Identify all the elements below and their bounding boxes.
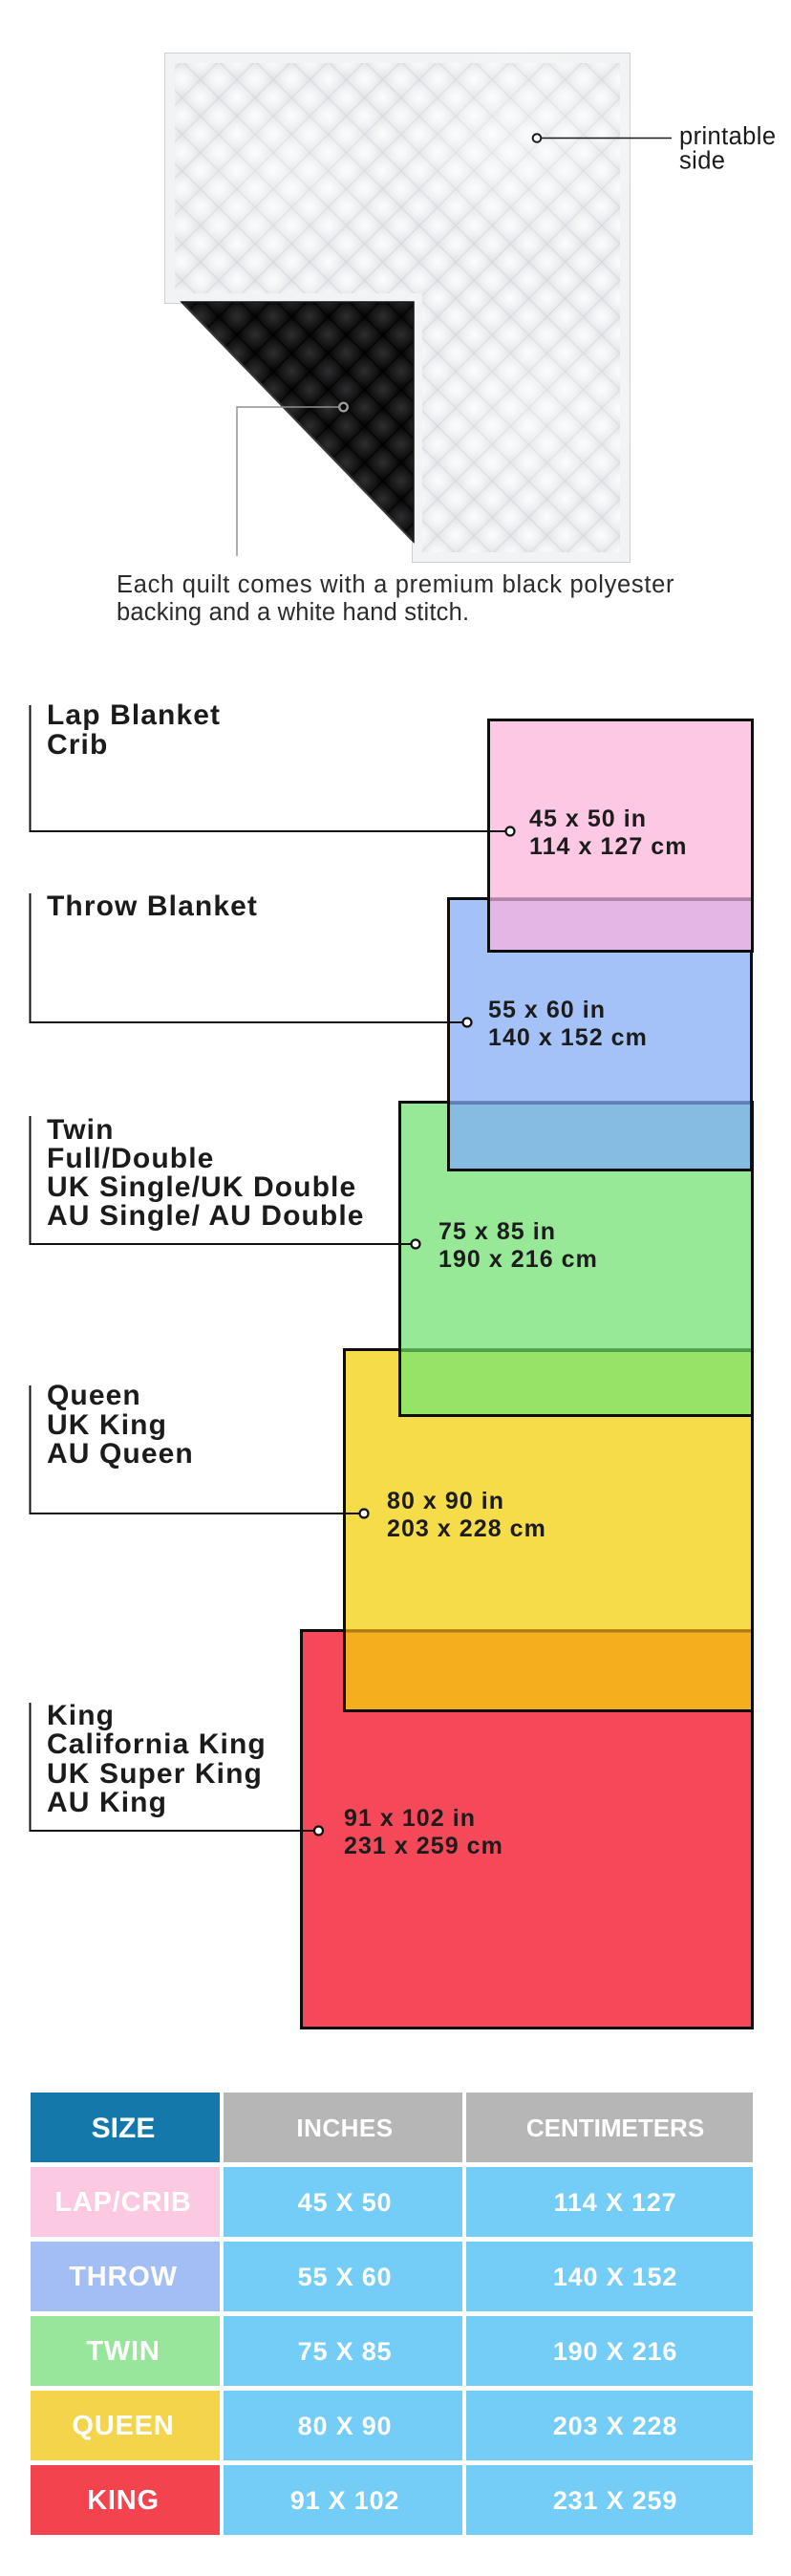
- svg-text:Full/Double: Full/Double: [47, 1143, 214, 1174]
- svg-text:140 X 152: 140 X 152: [553, 2263, 677, 2291]
- svg-text:SIZE: SIZE: [92, 2113, 156, 2144]
- svg-text:203 x 228 cm: 203 x 228 cm: [387, 1515, 546, 1542]
- svg-text:45 X 50: 45 X 50: [298, 2188, 393, 2217]
- svg-text:UK King: UK King: [47, 1409, 167, 1441]
- svg-text:55 x 60 in: 55 x 60 in: [488, 997, 606, 1023]
- svg-text:45 x 50 in: 45 x 50 in: [529, 805, 647, 832]
- svg-text:KING: KING: [87, 2485, 160, 2516]
- svg-text:Twin: Twin: [47, 1114, 115, 1146]
- svg-text:75 x 85 in: 75 x 85 in: [438, 1218, 556, 1245]
- svg-text:Crib: Crib: [47, 729, 108, 761]
- svg-text:UK Super King: UK Super King: [47, 1758, 263, 1790]
- svg-text:INCHES: INCHES: [296, 2114, 393, 2142]
- svg-text:75 X 85: 75 X 85: [298, 2337, 393, 2366]
- svg-text:190 x 216 cm: 190 x 216 cm: [438, 1246, 598, 1273]
- svg-text:Lap Blanket: Lap Blanket: [47, 699, 221, 731]
- svg-text:190 X 216: 190 X 216: [553, 2337, 677, 2366]
- svg-text:Each quilt comes with a premiu: Each quilt comes with a premium black po…: [117, 571, 674, 598]
- svg-text:Queen: Queen: [47, 1380, 141, 1411]
- svg-text:231 X 259: 231 X 259: [553, 2486, 677, 2515]
- svg-text:Throw Blanket: Throw Blanket: [47, 891, 258, 922]
- svg-text:203 X 228: 203 X 228: [553, 2412, 677, 2440]
- svg-text:QUEEN: QUEEN: [72, 2411, 174, 2441]
- svg-text:AU Single/ AU Double: AU Single/ AU Double: [47, 1200, 365, 1232]
- svg-text:TWIN: TWIN: [86, 2336, 160, 2367]
- svg-text:California King: California King: [47, 1728, 267, 1760]
- svg-text:AU Queen: AU Queen: [47, 1438, 194, 1470]
- svg-text:140 x 152 cm: 140 x 152 cm: [488, 1024, 648, 1051]
- svg-text:55 X 60: 55 X 60: [298, 2263, 393, 2291]
- svg-text:91 X 102: 91 X 102: [290, 2486, 400, 2515]
- svg-text:231 x 259 cm: 231 x 259 cm: [344, 1833, 503, 1859]
- svg-text:91 x 102 in: 91 x 102 in: [344, 1805, 476, 1832]
- svg-text:printable: printable: [679, 123, 776, 150]
- svg-text:80 X 90: 80 X 90: [298, 2412, 393, 2440]
- svg-text:side: side: [679, 148, 725, 175]
- svg-text:80 x 90 in: 80 x 90 in: [387, 1488, 504, 1514]
- svg-text:AU King: AU King: [47, 1787, 167, 1818]
- svg-text:UK Single/UK Double: UK Single/UK Double: [47, 1171, 356, 1203]
- svg-text:CENTIMETERS: CENTIMETERS: [526, 2114, 704, 2142]
- svg-text:King: King: [47, 1700, 115, 1731]
- svg-text:THROW: THROW: [69, 2262, 178, 2292]
- svg-text:LAP/CRIB: LAP/CRIB: [54, 2187, 191, 2218]
- svg-text:backing and a white hand stitc: backing and a white hand stitch.: [117, 599, 469, 626]
- svg-text:114 x 127 cm: 114 x 127 cm: [529, 833, 688, 860]
- svg-text:114 X 127: 114 X 127: [554, 2188, 677, 2217]
